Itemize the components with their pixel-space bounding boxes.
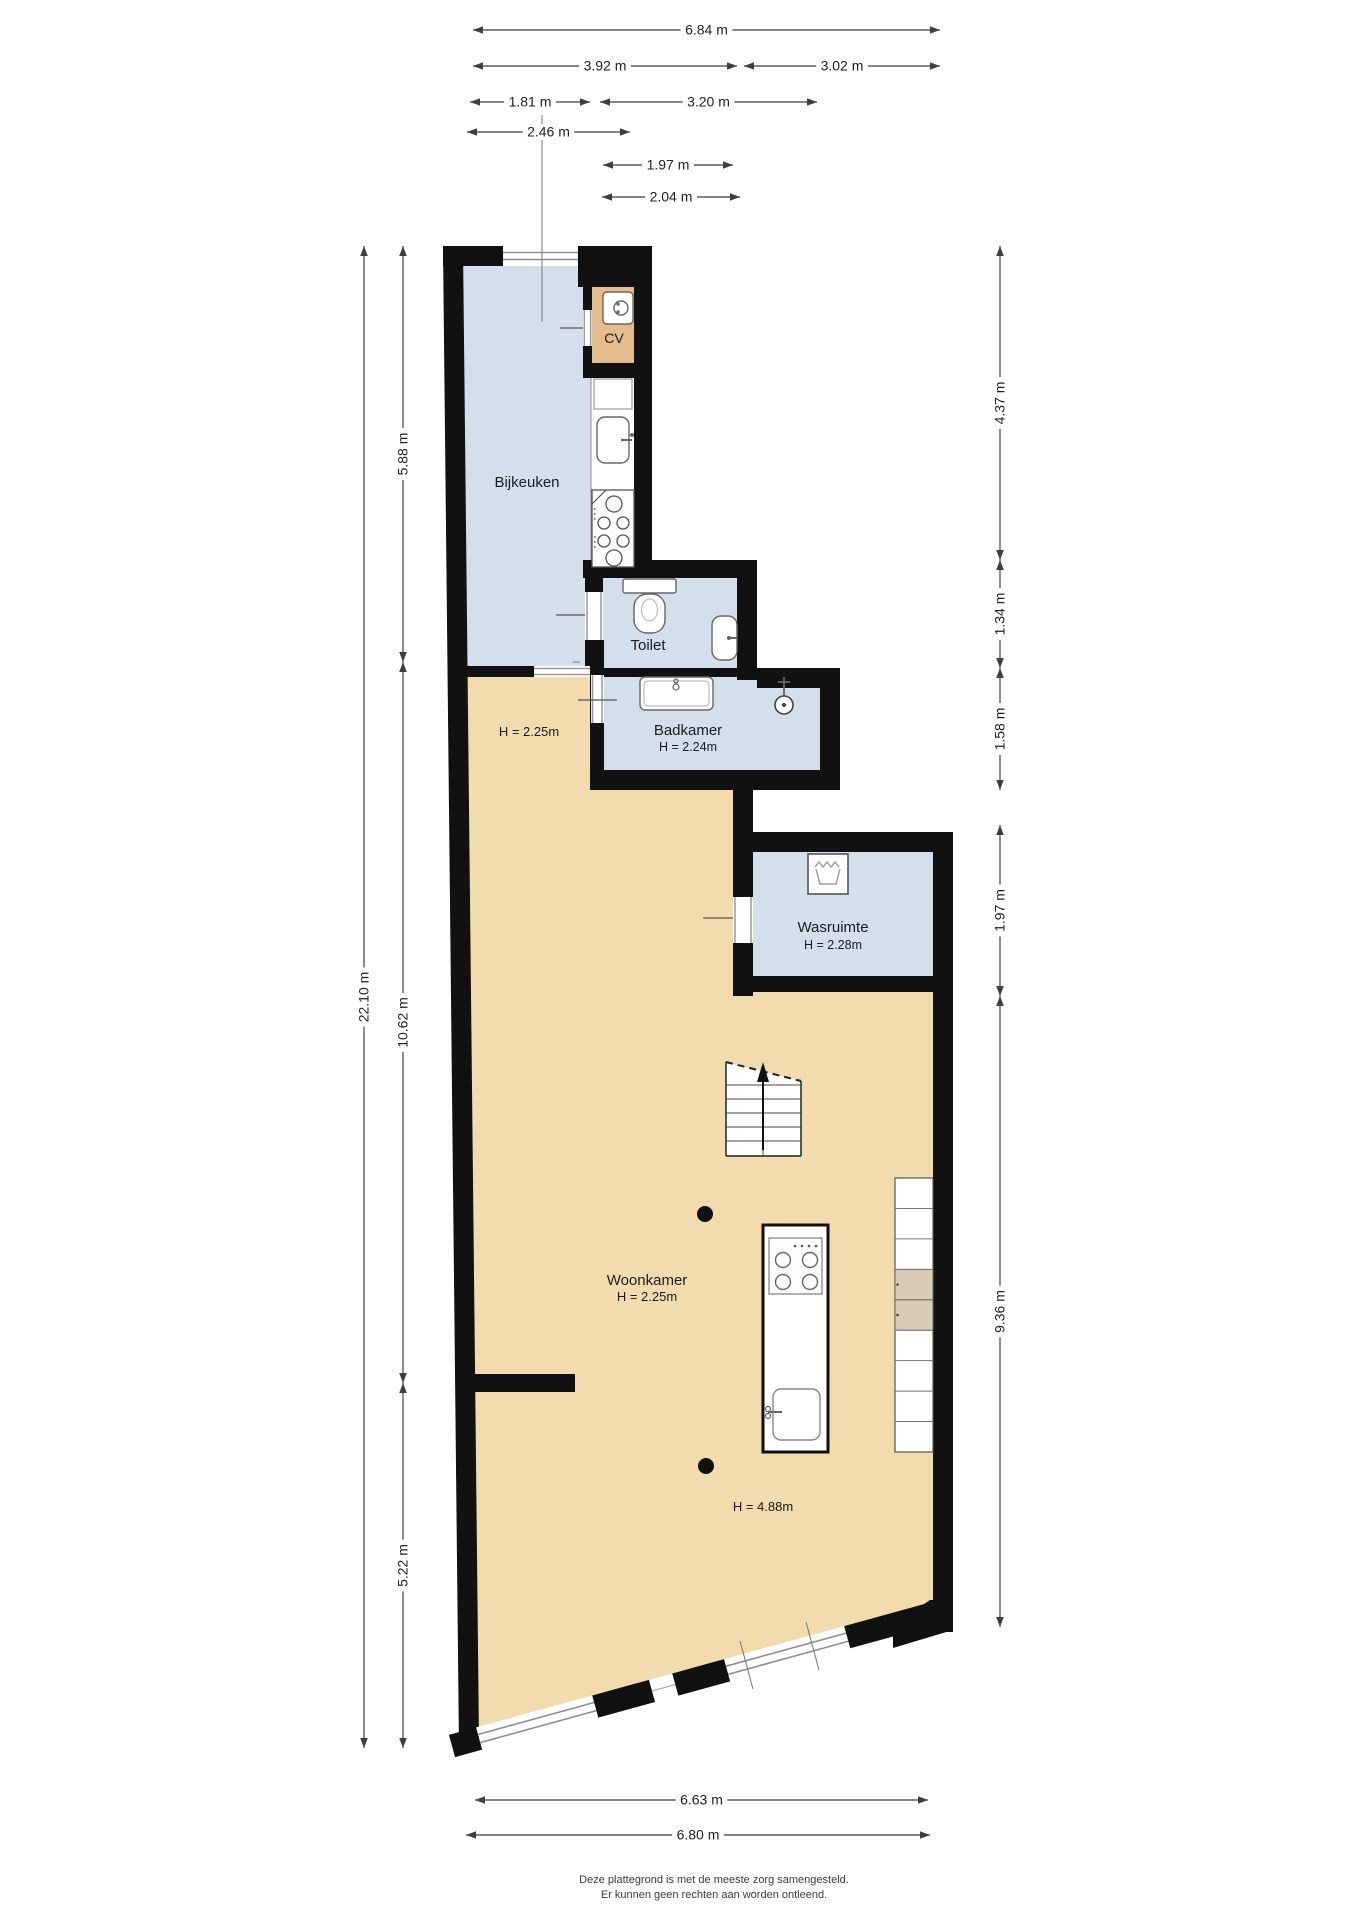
windows-layer — [503, 246, 578, 266]
wall-wasruimte-top — [733, 832, 953, 852]
dim-680-label: 6.80 m — [677, 1827, 720, 1843]
wall-hal-wasruimte — [733, 790, 753, 996]
label-vide-height: H = 4.88m — [733, 1499, 793, 1514]
label-cv: CV — [604, 330, 624, 346]
dim-197-top-label: 1.97 m — [647, 157, 690, 173]
kitchen-cupboard — [594, 379, 632, 409]
wall-toilet-right — [737, 560, 757, 680]
dim-437-label: 4.37 m — [992, 382, 1008, 425]
bath-icon — [640, 677, 713, 710]
label-wasruimte-height: H = 2.28m — [804, 938, 862, 952]
floorplan-svg: 6.84 m3.92 m3.02 m1.81 m3.20 m2.46 m1.97… — [0, 0, 1358, 1920]
dim-246-label: 2.46 m — [527, 124, 570, 140]
dim-936-label: 9.36 m — [992, 1290, 1008, 1333]
dim-392-label: 3.92 m — [584, 58, 627, 74]
footer-disclaimer-line1: Deze plattegrond is met de meeste zorg s… — [579, 1874, 849, 1886]
label-woonkamer: Woonkamer — [607, 1272, 688, 1289]
dim-204-label: 2.04 m — [650, 189, 693, 205]
wall-cv-bottom — [583, 363, 634, 378]
shelf-layer — [895, 1178, 933, 1452]
wall-stub-left — [463, 1374, 575, 1392]
door-wasruimte — [733, 897, 753, 943]
kitchen-stove-icon — [592, 490, 634, 567]
dim-181-label: 1.81 m — [509, 94, 552, 110]
label-badkamer-height: H = 2.24m — [659, 740, 717, 754]
room-bijkeuken — [463, 266, 591, 666]
dim-158-label: 1.58 m — [992, 708, 1008, 751]
wall-wasruimte-bottom — [753, 976, 933, 992]
dim-588-label: 5.88 m — [395, 433, 411, 476]
column-dot — [698, 1458, 714, 1474]
opening-bijkeuken-hal — [534, 666, 590, 677]
dim-2210-label: 22.10 m — [356, 972, 372, 1023]
toilet-icon — [623, 579, 676, 593]
dim-302-label: 3.02 m — [821, 58, 864, 74]
wall-bijkeuken-bottom — [452, 666, 534, 677]
label-hal-height: H = 2.25m — [499, 724, 559, 739]
wall-right-strip — [634, 266, 652, 578]
dim-320-label: 3.20 m — [687, 94, 730, 110]
wall-toilet-bottom — [602, 668, 757, 677]
label-bijkeuken: Bijkeuken — [494, 474, 559, 491]
dim-1062-label: 10.62 m — [395, 997, 411, 1048]
label-wasruimte: Wasruimte — [797, 919, 868, 936]
wall-right-lower — [933, 832, 953, 1632]
dim-663-label: 6.63 m — [680, 1792, 723, 1808]
wall-badkamer-ext-top — [757, 668, 840, 688]
dim-197-right-label: 1.97 m — [992, 889, 1008, 932]
dim-684-label: 6.84 m — [685, 22, 728, 38]
wall-badkamer-bottom — [590, 770, 840, 790]
floorplan-page: 6.84 m3.92 m3.02 m1.81 m3.20 m2.46 m1.97… — [0, 0, 1358, 1920]
label-toilet: Toilet — [630, 637, 666, 654]
washing-machine-icon — [808, 854, 848, 894]
dim-522-label: 5.22 m — [395, 1544, 411, 1587]
label-woonkamer-height: H = 2.25m — [617, 1289, 677, 1304]
window-bijkeuken-top — [503, 246, 578, 266]
dim-134-label: 1.34 m — [992, 593, 1008, 636]
column-dot — [697, 1206, 713, 1222]
footer-disclaimer-line2: Er kunnen geen rechten aan worden ontlee… — [601, 1889, 827, 1901]
label-badkamer: Badkamer — [654, 722, 722, 739]
island-sink-icon — [773, 1389, 820, 1440]
